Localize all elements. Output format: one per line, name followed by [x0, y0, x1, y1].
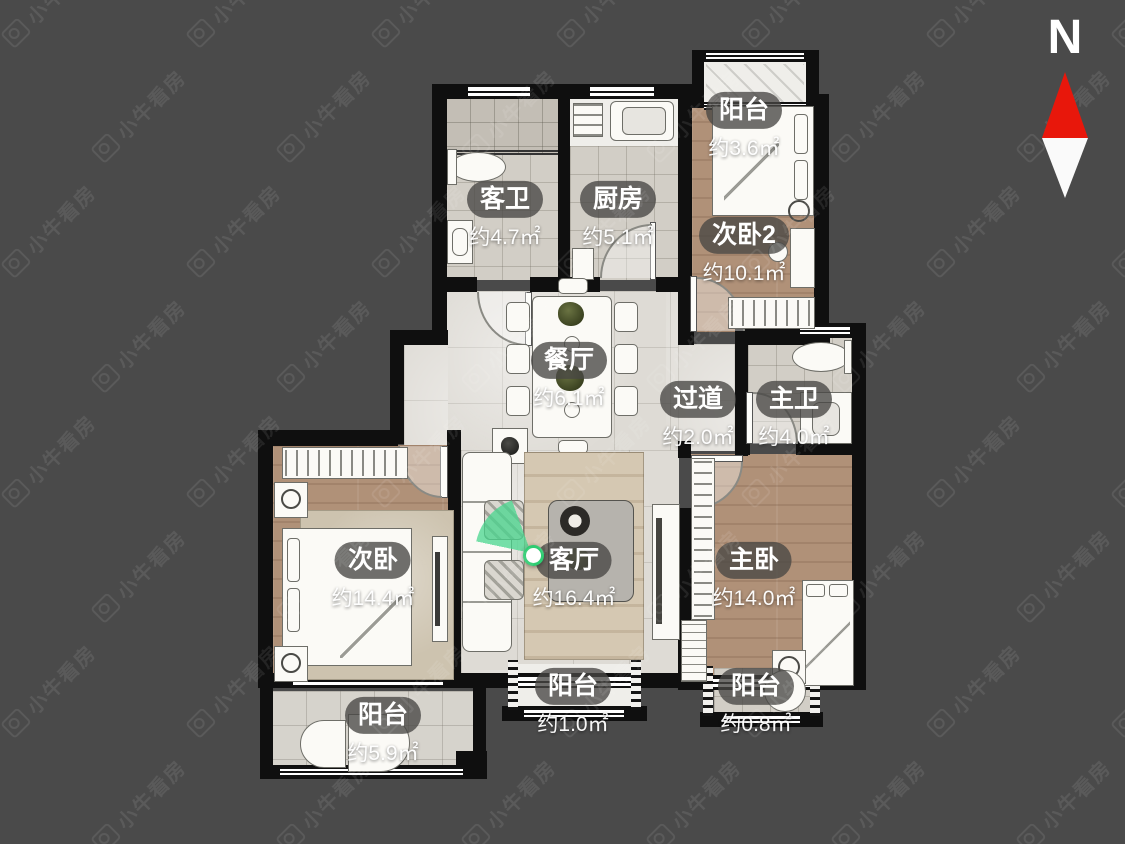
watermark: 小牛看房	[827, 752, 932, 844]
door-leaf	[746, 392, 753, 444]
watermark-text: 小牛看房	[204, 0, 287, 30]
laundry-tub	[348, 714, 410, 772]
compass: N	[1034, 14, 1096, 198]
watermark-text: 小牛看房	[0, 522, 7, 605]
watermark-text: 小牛看房	[849, 752, 932, 835]
watermark: 小牛看房	[1012, 522, 1117, 627]
watermark-logo-icon	[1110, 247, 1125, 279]
watermark-logo-icon	[370, 17, 402, 49]
wall	[558, 94, 570, 285]
watermark: 小牛看房	[827, 62, 932, 167]
wall	[258, 430, 398, 446]
watermark-logo-icon	[925, 707, 957, 739]
ceiling-fan-icon	[788, 200, 810, 222]
watermark-logo-icon	[0, 247, 32, 279]
watermark-logo-icon	[90, 132, 122, 164]
wall	[814, 94, 829, 345]
pillow	[794, 160, 808, 200]
dining-chair	[506, 344, 530, 374]
watermark-logo-icon	[460, 822, 492, 844]
window	[524, 708, 624, 719]
watermark-text: 小牛看房	[1034, 292, 1117, 375]
watermark-text: 小牛看房	[849, 62, 932, 145]
watermark-logo-icon	[925, 247, 957, 279]
kitchen-stove	[573, 103, 603, 137]
watermark: 小牛看房	[1107, 637, 1125, 742]
watermark-text: 小牛看房	[109, 522, 192, 605]
tv-screen	[656, 518, 662, 624]
watermark-text: 小牛看房	[0, 752, 7, 835]
watermark-text: 小牛看房	[944, 177, 1027, 260]
balcony-door-window	[516, 675, 638, 688]
table-plant	[556, 365, 584, 391]
tv-screen	[435, 552, 440, 626]
watermark-text: 小牛看房	[294, 62, 377, 145]
wall	[678, 441, 691, 458]
watermark: 小牛看房	[1107, 0, 1125, 52]
watermark-logo-icon	[830, 822, 862, 844]
watermark-logo-icon	[1015, 822, 1047, 844]
toilet	[450, 152, 506, 182]
blanket-fold	[724, 140, 779, 202]
watermark-text: 小牛看房	[389, 0, 472, 30]
watermark-logo-icon	[1015, 362, 1047, 394]
window	[706, 51, 804, 61]
watermark: 小牛看房	[0, 62, 7, 167]
dining-chair	[614, 344, 638, 374]
compass-needle-tail-icon	[1042, 138, 1088, 198]
dining-chair	[614, 386, 638, 416]
wall	[390, 330, 404, 444]
floor-hallway	[678, 344, 736, 451]
kitchen-cabinet	[572, 248, 594, 280]
watermark-text: 小牛看房	[109, 752, 192, 835]
watermark: 小牛看房	[0, 0, 102, 52]
watermark-text: 小牛看房	[204, 177, 287, 260]
wall	[432, 84, 447, 345]
blanket-fold	[340, 596, 402, 658]
watermark-text: 小牛看房	[0, 292, 7, 375]
pillow	[287, 538, 300, 582]
dining-chair	[506, 386, 530, 416]
watermark-logo-icon	[185, 17, 217, 49]
watermark: 小牛看房	[922, 0, 1027, 52]
shelf-master	[681, 620, 707, 682]
watermark: 小牛看房	[87, 62, 192, 167]
pillow	[829, 584, 848, 597]
watermark-logo-icon	[275, 132, 307, 164]
wall	[258, 430, 273, 688]
watermark: 小牛看房	[182, 177, 287, 282]
wall	[852, 447, 866, 690]
watermark-logo-icon	[185, 247, 217, 279]
watermark-text: 小牛看房	[944, 0, 1027, 30]
watermark: 小牛看房	[0, 637, 102, 742]
chair-bedroom2	[768, 242, 788, 262]
watermark-text: 小牛看房	[944, 407, 1027, 490]
window	[590, 85, 654, 98]
watermark: 小牛看房	[87, 522, 192, 627]
speaker-icon	[281, 489, 301, 509]
window-mullion	[508, 660, 518, 710]
watermark: 小牛看房	[922, 637, 1027, 742]
watermark-logo-icon	[275, 822, 307, 844]
speaker-icon	[281, 653, 301, 673]
pillow	[287, 588, 300, 632]
bathroom-sink-basin	[452, 228, 468, 256]
watermark-logo-icon	[645, 822, 677, 844]
watermark-text: 小牛看房	[109, 292, 192, 375]
watermark: 小牛看房	[922, 177, 1027, 282]
table-plant	[558, 302, 584, 326]
watermark-text: 小牛看房	[19, 177, 102, 260]
plate	[564, 402, 580, 418]
plate	[564, 336, 580, 352]
wall	[432, 277, 477, 292]
watermark-text: 小牛看房	[0, 62, 7, 145]
watermark: 小牛看房	[272, 62, 377, 167]
watermark-text: 小牛看房	[1034, 522, 1117, 605]
watermark-logo-icon	[740, 17, 772, 49]
watermark-logo-icon	[925, 17, 957, 49]
watermark-logo-icon	[925, 477, 957, 509]
watermark: 小牛看房	[1012, 752, 1117, 844]
compass-needle-icon	[1042, 72, 1088, 138]
window	[724, 714, 800, 725]
watermark-text: 小牛看房	[19, 637, 102, 720]
watermark-logo-icon	[0, 17, 32, 49]
dining-chair	[614, 302, 638, 332]
panorama-marker[interactable]	[523, 545, 544, 566]
dining-chair	[558, 278, 588, 294]
watermark-logo-icon	[0, 707, 32, 739]
watermark-text: 小牛看房	[759, 0, 842, 30]
watermark: 小牛看房	[182, 0, 287, 52]
watermark-logo-icon	[555, 17, 587, 49]
watermark: 小牛看房	[1107, 407, 1125, 512]
watermark: 小牛看房	[0, 407, 102, 512]
watermark-text: 小牛看房	[944, 637, 1027, 720]
watermark-logo-icon	[1015, 592, 1047, 624]
watermark: 小牛看房	[642, 752, 747, 844]
watermark-text: 小牛看房	[574, 0, 657, 30]
watermark-logo-icon	[370, 247, 402, 279]
watermark: 小牛看房	[0, 177, 102, 282]
watermark: 小牛看房	[0, 522, 7, 627]
watermark-text: 小牛看房	[1034, 752, 1117, 835]
bathroom-sink-basin	[812, 402, 840, 436]
watermark: 小牛看房	[0, 752, 7, 844]
balcony-round-table	[764, 670, 806, 712]
watermark-logo-icon	[90, 362, 122, 394]
toilet-tank	[447, 149, 457, 185]
watermark-logo-icon	[830, 132, 862, 164]
watermark-text: 小牛看房	[294, 292, 377, 375]
wardrobe-hangers	[731, 300, 812, 326]
watermark: 小牛看房	[1107, 177, 1125, 282]
watermark-text: 小牛看房	[19, 0, 102, 30]
floorplan-screenshot: 客卫 约4.7㎡ 厨房 约5.1㎡ 阳台 约3.6㎡ 次卧2 约10.1㎡ 餐厅…	[0, 0, 1125, 844]
watermark-logo-icon	[185, 707, 217, 739]
watermark-logo-icon	[275, 362, 307, 394]
wardrobe-hangers	[694, 461, 712, 617]
toilet	[792, 342, 850, 372]
compass-north-label: N	[1034, 14, 1096, 62]
watermark-logo-icon	[185, 477, 217, 509]
watermark-logo-icon	[90, 822, 122, 844]
watermark-logo-icon	[1110, 477, 1125, 509]
balcony-top-rack	[706, 64, 804, 106]
watermark-text: 小牛看房	[19, 407, 102, 490]
wall	[678, 330, 694, 345]
door-leaf	[690, 276, 697, 332]
watermark-logo-icon	[1110, 707, 1125, 739]
watermark: 小牛看房	[737, 0, 842, 52]
window-mullion	[631, 660, 641, 710]
laundry-basin	[300, 720, 346, 768]
floor-shower-area	[446, 98, 560, 154]
watermark-text: 小牛看房	[664, 752, 747, 835]
wall	[260, 679, 273, 779]
desk-bedroom2	[790, 228, 815, 288]
watermark-logo-icon	[0, 477, 32, 509]
watermark: 小牛看房	[87, 752, 192, 844]
watermark: 小牛看房	[367, 0, 472, 52]
watermark-logo-icon	[1110, 17, 1125, 49]
watermark: 小牛看房	[272, 292, 377, 397]
watermark: 小牛看房	[922, 407, 1027, 512]
floor-dining-step	[404, 344, 448, 446]
watermark: 小牛看房	[87, 292, 192, 397]
toilet-tank	[844, 340, 852, 374]
dining-chair	[506, 302, 530, 332]
blanket-fold	[806, 620, 850, 670]
watermark-text: 小牛看房	[109, 62, 192, 145]
pillow	[806, 584, 825, 597]
watermark: 小牛看房	[552, 0, 657, 52]
window	[468, 85, 530, 98]
watermark: 小牛看房	[1012, 292, 1117, 397]
wardrobe-hangers	[285, 450, 405, 476]
watermark: 小牛看房	[0, 292, 7, 397]
watermark-text: 小牛看房	[479, 752, 562, 835]
watermark-logo-icon	[90, 592, 122, 624]
kitchen-sink-basin	[622, 107, 666, 135]
pillow	[794, 114, 808, 154]
wall	[852, 323, 866, 456]
